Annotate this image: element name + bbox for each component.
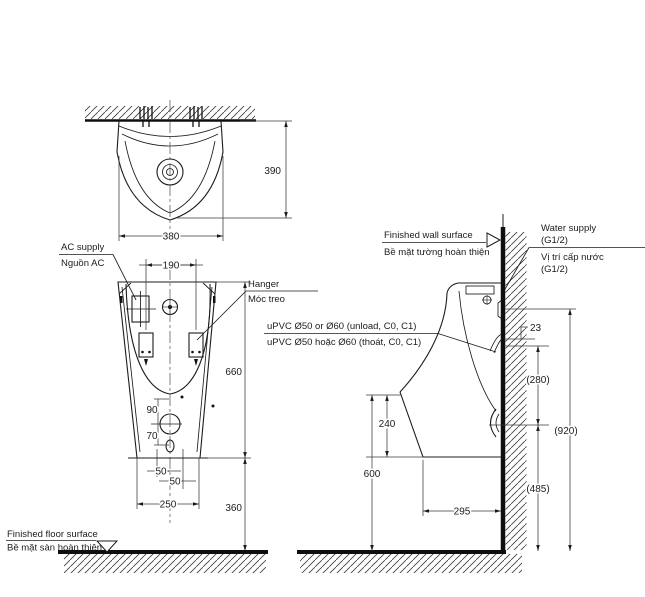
label-wall-vi: Bề mặt tường hoàn thiện bbox=[384, 247, 490, 258]
dim-supply-height: (920) bbox=[554, 426, 577, 437]
dim-lip-height: 600 bbox=[364, 469, 381, 480]
front-view: 190 90 70 50 50 250 660 360 bbox=[118, 259, 251, 551]
drain-trap-detail bbox=[491, 409, 497, 437]
label-hanger-vi: Móc treo bbox=[248, 294, 285, 305]
label-hanger-en: Hanger bbox=[248, 279, 279, 290]
label-upvc-vi: uPVC Ø50 hoặc Ø60 (thoát, C0, C1) bbox=[267, 337, 421, 348]
upvc-leader bbox=[438, 334, 496, 353]
plan-view: 390 380 bbox=[85, 100, 292, 243]
dim-hanger-spacing: 190 bbox=[163, 261, 180, 272]
dim-bottom-width: 250 bbox=[160, 500, 177, 511]
label-water-vi-2: (G1/2) bbox=[541, 264, 568, 275]
label-floor-vi: Bề mặt sàn hoàn thiện bbox=[7, 543, 102, 554]
technical-drawing-canvas: 390 380 190 bbox=[0, 0, 645, 597]
dim-supply-to-trap: (280) bbox=[526, 375, 549, 386]
hanger-leader bbox=[197, 291, 246, 340]
front-bolt-mark-left bbox=[120, 296, 123, 303]
urinal-installation-drawing: 390 380 190 bbox=[0, 0, 645, 597]
dim-drain-offset-up: 90 bbox=[146, 405, 158, 416]
wall-level-marker-icon bbox=[487, 233, 500, 247]
plan-inner-left bbox=[125, 141, 170, 213]
dim-drain-offset-down: 70 bbox=[146, 431, 158, 442]
hanger-bracket-left bbox=[139, 333, 153, 357]
dim-plan-width: 380 bbox=[163, 232, 180, 243]
dim-bolt-left: 50 bbox=[155, 467, 167, 478]
dim-supply-offset: 23 bbox=[530, 323, 542, 334]
floor-hatch-right bbox=[300, 554, 522, 573]
dim-lip-drop: 240 bbox=[379, 419, 396, 430]
floor-left: Finished floor surface Bề mặt sàn hoàn t… bbox=[6, 529, 268, 573]
label-water-en-2: (G1/2) bbox=[541, 235, 568, 246]
label-wall-en: Finished wall surface bbox=[384, 230, 473, 241]
dim-bolt-right: 50 bbox=[169, 477, 181, 488]
front-bolt-mark-right bbox=[213, 296, 216, 303]
front-corner-notch-right bbox=[203, 283, 215, 294]
ac-supply-leader bbox=[113, 255, 136, 301]
dim-floor-clearance: 360 bbox=[225, 503, 242, 514]
label-ac-supply-vi: Nguồn AC bbox=[61, 258, 104, 269]
side-body-lower bbox=[400, 392, 501, 457]
flush-spreader bbox=[466, 286, 494, 294]
front-corner-notch-left bbox=[119, 283, 131, 294]
label-upvc-en: uPVC Ø50 or Ø60 (unload, C0, C1) bbox=[267, 321, 416, 332]
front-body-outline bbox=[118, 282, 216, 458]
dim-trap-depth: 295 bbox=[454, 507, 471, 518]
plan-inner-right bbox=[170, 141, 215, 213]
dim-body-height: 660 bbox=[225, 367, 242, 378]
label-water-vi-1: Vị trí cấp nước bbox=[541, 252, 604, 263]
side-view: 23 (280) (485) (920) 600 240 295 Finishe… bbox=[264, 214, 645, 573]
wall-hatch bbox=[506, 232, 527, 550]
label-water-en-1: Water supply bbox=[541, 223, 596, 234]
floor-hatch-left bbox=[64, 554, 266, 573]
label-floor-en: Finished floor surface bbox=[7, 529, 98, 540]
label-ac-supply-en: AC supply bbox=[61, 242, 105, 253]
dim-plan-depth: 390 bbox=[264, 166, 281, 177]
dim-trap-height: (485) bbox=[526, 484, 549, 495]
